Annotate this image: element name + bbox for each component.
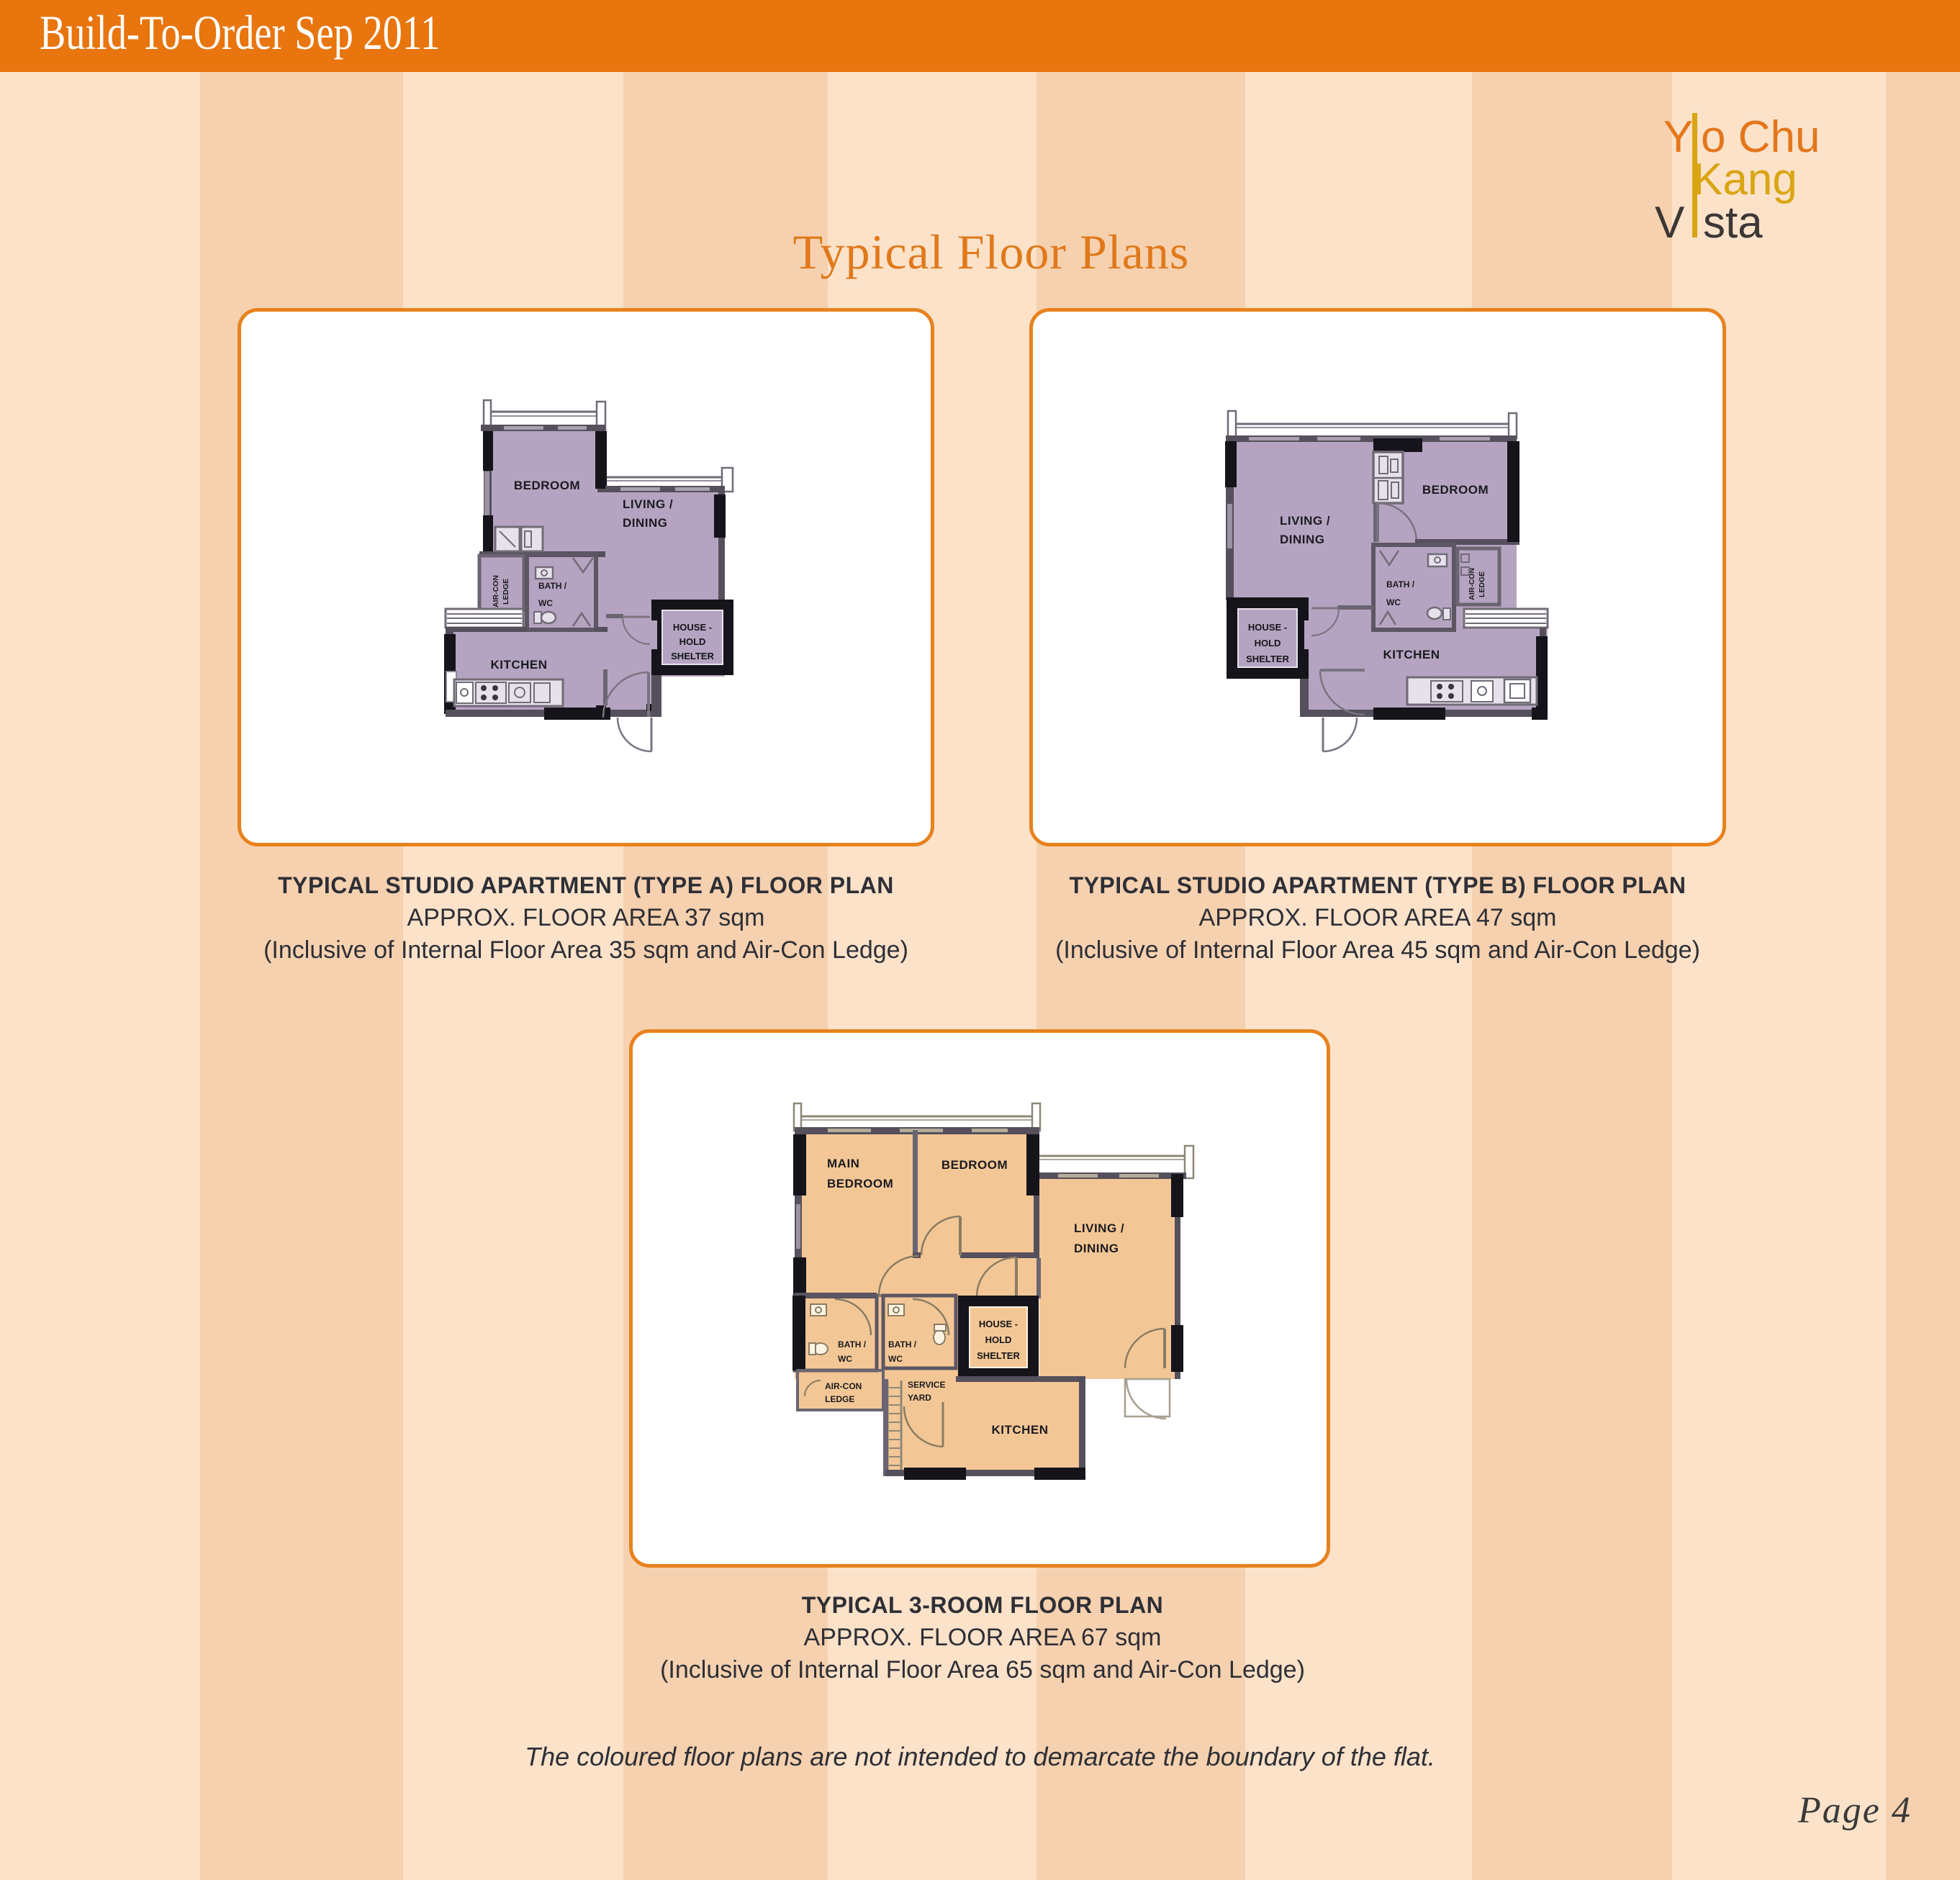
- svg-text:WC: WC: [1386, 597, 1401, 607]
- svg-text:AIR-CON: AIR-CON: [825, 1381, 862, 1391]
- svg-text:BATH /: BATH /: [1386, 579, 1415, 589]
- svg-text:LIVING /: LIVING /: [623, 497, 673, 511]
- svg-text:V: V: [1655, 198, 1685, 248]
- svg-text:LEDGE: LEDGE: [1478, 571, 1486, 597]
- svg-text:AIR-CON: AIR-CON: [492, 575, 500, 607]
- svg-text:DINING: DINING: [623, 516, 668, 530]
- svg-text:BEDROOM: BEDROOM: [1422, 483, 1489, 497]
- svg-text:BATH /: BATH /: [888, 1339, 917, 1350]
- svg-text:LIVING /: LIVING /: [1074, 1221, 1124, 1235]
- svg-text:SERVICE: SERVICE: [908, 1380, 945, 1390]
- svg-text:DINING: DINING: [1074, 1242, 1119, 1255]
- svg-text:HOLD: HOLD: [679, 636, 706, 647]
- svg-text:YARD: YARD: [908, 1393, 931, 1403]
- svg-text:sta: sta: [1703, 198, 1763, 248]
- svg-text:SHELTER: SHELTER: [671, 651, 714, 661]
- svg-text:BEDROOM: BEDROOM: [941, 1158, 1008, 1172]
- svg-text:MAIN: MAIN: [827, 1157, 859, 1170]
- svg-text:HOUSE -: HOUSE -: [673, 622, 712, 633]
- svg-text:DINING: DINING: [1280, 533, 1325, 546]
- svg-text:WC: WC: [538, 598, 553, 608]
- svg-text:LIVING /: LIVING /: [1280, 514, 1330, 528]
- svg-text:BEDROOM: BEDROOM: [514, 479, 580, 492]
- svg-text:SHELTER: SHELTER: [977, 1350, 1020, 1361]
- svg-text:SHELTER: SHELTER: [1246, 654, 1289, 664]
- svg-text:HOUSE -: HOUSE -: [979, 1319, 1018, 1329]
- svg-text:LEDGE: LEDGE: [825, 1394, 854, 1404]
- svg-text:LEDGE: LEDGE: [502, 579, 510, 605]
- svg-text:WC: WC: [888, 1354, 903, 1364]
- svg-text:KITCHEN: KITCHEN: [490, 658, 547, 672]
- svg-text:HOLD: HOLD: [1255, 638, 1281, 648]
- svg-text:BATH /: BATH /: [538, 581, 567, 591]
- svg-text:KITCHEN: KITCHEN: [991, 1423, 1048, 1437]
- svg-text:HOUSE -: HOUSE -: [1248, 622, 1287, 633]
- svg-text:Y: Y: [1663, 112, 1693, 162]
- svg-text:WC: WC: [838, 1354, 852, 1364]
- svg-text:HOLD: HOLD: [985, 1334, 1012, 1345]
- svg-text:Kang: Kang: [1693, 155, 1797, 204]
- svg-text:BEDROOM: BEDROOM: [827, 1177, 893, 1190]
- svg-text:BATH /: BATH /: [838, 1339, 867, 1350]
- svg-text:KITCHEN: KITCHEN: [1383, 648, 1440, 661]
